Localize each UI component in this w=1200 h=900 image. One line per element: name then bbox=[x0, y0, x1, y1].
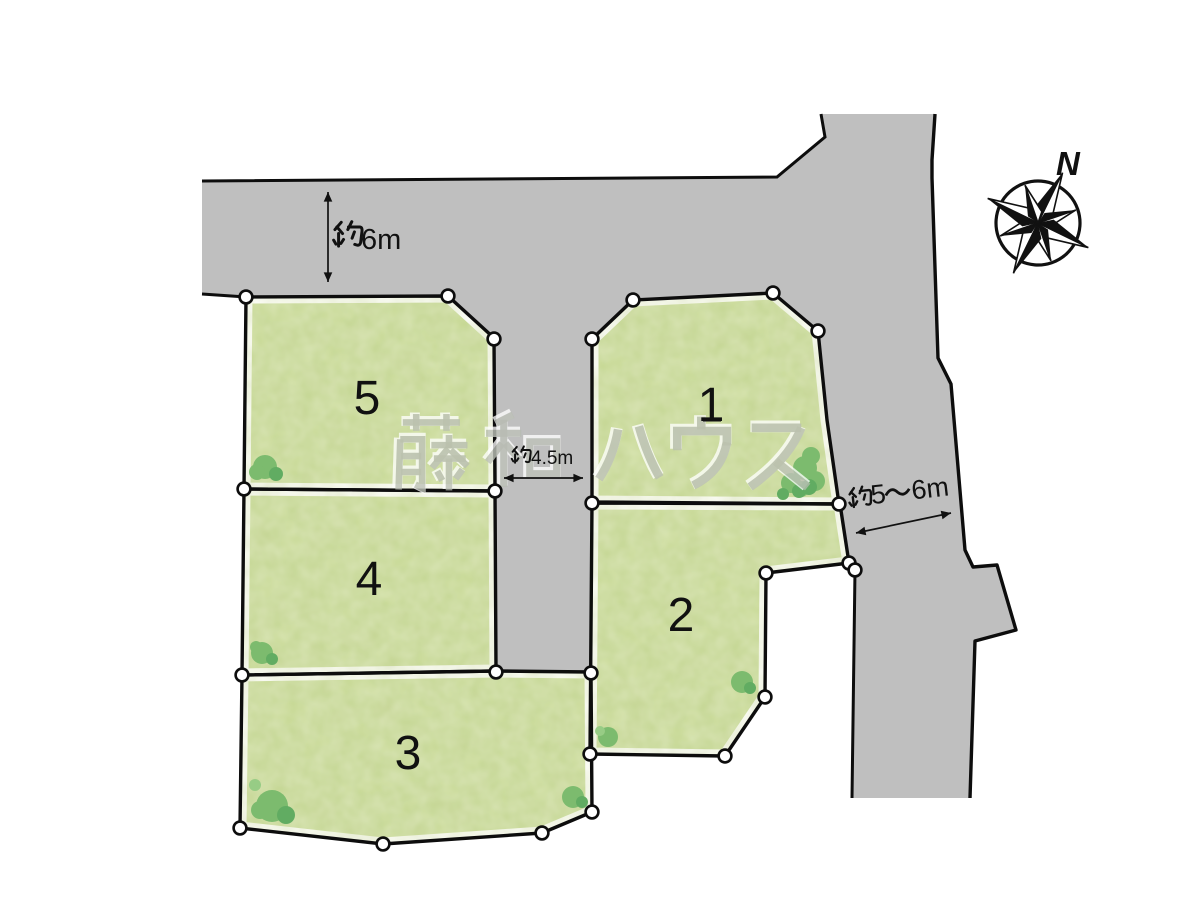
svg-text:6m: 6m bbox=[910, 471, 951, 505]
svg-text:6m: 6m bbox=[361, 224, 401, 256]
svg-text:1: 1 bbox=[698, 379, 725, 432]
svg-text:5: 5 bbox=[354, 372, 381, 425]
svg-text:4: 4 bbox=[356, 553, 383, 606]
svg-text:4.5m: 4.5m bbox=[531, 448, 573, 469]
svg-text:N: N bbox=[1056, 145, 1081, 182]
svg-text:2: 2 bbox=[668, 589, 695, 642]
svg-text:3: 3 bbox=[395, 727, 422, 780]
